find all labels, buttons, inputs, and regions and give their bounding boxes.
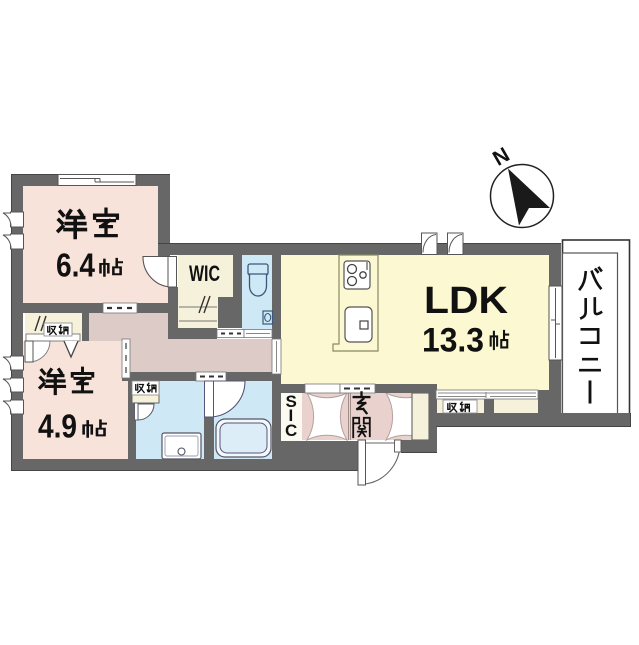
svg-text:13.3: 13.3 xyxy=(422,322,484,360)
svg-text:C: C xyxy=(285,421,297,440)
svg-text:4.9: 4.9 xyxy=(38,408,77,445)
svg-text:WIC: WIC xyxy=(189,261,220,286)
svg-text:6.4: 6.4 xyxy=(56,247,96,284)
svg-text:LDK: LDK xyxy=(424,280,509,322)
